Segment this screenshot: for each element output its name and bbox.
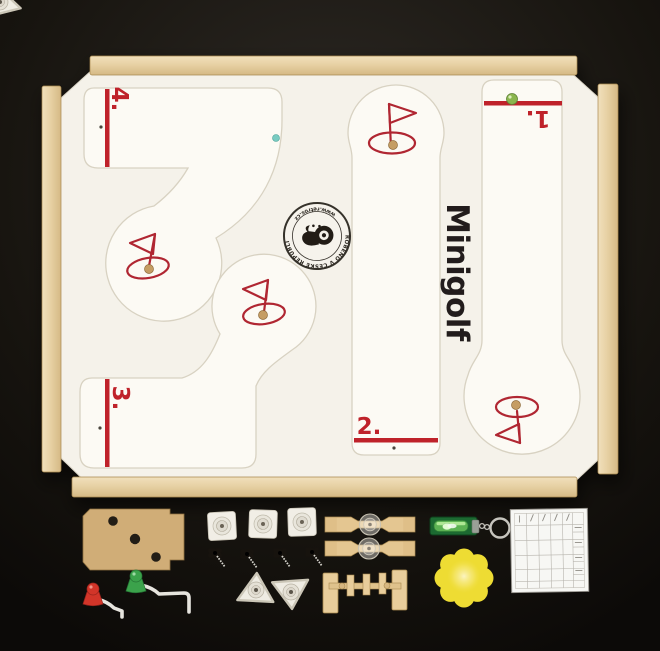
mdf-target-board — [83, 509, 184, 570]
green-ball — [507, 94, 518, 105]
square-foot-tile — [288, 508, 317, 537]
teal-ball — [273, 135, 280, 142]
rail-top — [90, 56, 577, 75]
hole-peg — [389, 141, 398, 150]
scorecard — [510, 508, 588, 592]
screw-hole — [99, 125, 102, 128]
square-foot-tile — [249, 510, 278, 539]
hole-peg — [512, 401, 521, 410]
hole-peg — [145, 265, 154, 274]
flower-sponge — [435, 549, 494, 608]
minigolf-board: 4. 3. 2. 1. Minigolf — [42, 56, 618, 497]
rail-right — [598, 84, 618, 474]
product-photo: 4. 3. 2. 1. Minigolf — [0, 0, 660, 651]
start-line-hole-1 — [484, 101, 562, 106]
lane-hole-2 — [348, 85, 444, 455]
spinner-obstacle — [325, 514, 415, 535]
screw-hole — [98, 426, 101, 429]
screw-hole — [392, 446, 395, 449]
hole-peg — [259, 311, 268, 320]
rail-bottom — [72, 477, 577, 497]
spinner-obstacle — [325, 538, 415, 559]
square-foot-tile — [207, 511, 236, 540]
hole-number-1: 1. — [526, 105, 551, 131]
keychain-clasp — [472, 520, 479, 533]
hole-number-3: 3. — [107, 386, 133, 411]
product-title: Minigolf — [439, 203, 475, 342]
rail-left — [42, 86, 61, 472]
hole-number-4: 4. — [106, 87, 132, 112]
hole-number-2: 2. — [357, 414, 382, 440]
